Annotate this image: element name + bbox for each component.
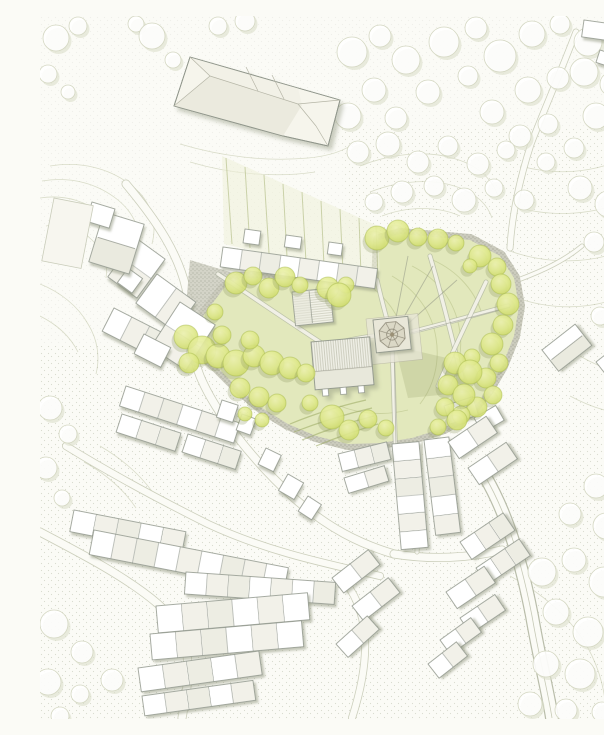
roof-tint — [207, 600, 234, 628]
roof-tint — [187, 687, 211, 709]
background-tree — [407, 151, 429, 173]
roof-tint — [206, 574, 228, 596]
background-tree — [139, 23, 165, 49]
roof-tint — [235, 652, 261, 678]
tree — [430, 419, 446, 435]
background-tree — [424, 176, 444, 196]
background-tree — [385, 107, 407, 129]
background-tree — [547, 67, 569, 89]
building-block — [582, 20, 604, 41]
tree — [241, 331, 259, 349]
background-tree — [538, 114, 558, 134]
background-tree — [429, 27, 459, 57]
background-tree — [519, 21, 545, 47]
background-tree — [480, 100, 504, 124]
background-tree — [40, 65, 57, 83]
background-tree — [71, 685, 89, 703]
tree — [458, 360, 482, 384]
background-tree — [562, 548, 586, 572]
church-roof-stripes — [311, 337, 372, 372]
background-tree — [518, 692, 542, 716]
roof-tint — [176, 630, 202, 657]
tree — [497, 293, 519, 315]
roof-tint — [394, 460, 421, 479]
tree — [447, 410, 467, 430]
background-tree — [101, 669, 123, 691]
tree — [207, 304, 223, 320]
background-tree — [69, 17, 87, 35]
building-footprint — [582, 20, 604, 41]
tree — [213, 326, 231, 344]
tree — [292, 277, 308, 293]
tree — [179, 353, 199, 373]
background-tree — [570, 58, 598, 86]
background-tree — [392, 46, 420, 74]
tree — [428, 229, 448, 249]
tree — [493, 315, 513, 335]
background-tree — [335, 103, 361, 129]
background-tree — [54, 490, 70, 506]
church-buttress — [322, 389, 329, 396]
roof-tint — [427, 457, 453, 478]
tree — [481, 333, 503, 355]
church-buttress — [340, 387, 347, 394]
background-tree — [484, 40, 516, 72]
background-tree — [497, 141, 515, 159]
building-footprint — [243, 229, 261, 245]
background-tree — [515, 77, 541, 103]
background-tree — [537, 153, 555, 171]
church-buttress — [358, 386, 365, 393]
tree — [359, 410, 377, 428]
background-tree — [514, 190, 534, 210]
tree — [491, 274, 511, 294]
tree — [484, 386, 502, 404]
tree — [453, 384, 475, 406]
background-tree — [71, 641, 93, 663]
roof-tint — [399, 513, 426, 532]
tree — [327, 283, 351, 307]
background-tree — [555, 699, 577, 719]
roof-tint — [251, 624, 277, 651]
tree — [387, 220, 409, 242]
background-tree — [391, 181, 413, 203]
background-tree — [209, 17, 227, 35]
background-tree — [485, 179, 503, 197]
tree — [378, 420, 394, 436]
background-tree — [362, 78, 386, 102]
site-plan — [40, 16, 604, 719]
background-tree — [543, 599, 569, 625]
building-block — [327, 242, 343, 256]
background-tree — [365, 193, 383, 211]
background-tree — [465, 17, 487, 39]
background-tree — [533, 651, 559, 677]
background-tree — [573, 617, 603, 647]
background-tree — [452, 188, 476, 212]
background-tree — [467, 153, 489, 175]
building-block — [243, 229, 261, 245]
roof-tint — [231, 681, 255, 703]
background-tree — [61, 85, 75, 99]
roof-tint — [176, 547, 201, 575]
roof-tint — [434, 514, 460, 535]
background-tree — [550, 16, 570, 34]
background-tree — [369, 25, 391, 47]
tree — [268, 394, 286, 412]
tree — [230, 378, 250, 398]
roof-tint — [201, 628, 227, 655]
background-tree — [438, 136, 458, 156]
background-tree — [565, 659, 595, 689]
tree — [244, 267, 262, 285]
roof-tint — [187, 658, 213, 684]
background-tree — [584, 232, 604, 252]
roof-tint — [228, 576, 250, 598]
roof-tint — [396, 477, 423, 496]
background-tree — [43, 25, 69, 51]
roof-tint — [163, 662, 189, 688]
background-tree — [165, 52, 181, 68]
building-footprint — [284, 235, 302, 249]
background-tree — [347, 141, 369, 163]
background-tree — [59, 425, 77, 443]
roof-tint — [313, 582, 335, 604]
background-tree — [376, 132, 400, 156]
tree — [297, 364, 315, 382]
site-plan-canvas — [40, 16, 604, 719]
background-tree — [40, 610, 68, 638]
roof-tint — [165, 690, 189, 712]
roof-tint — [356, 267, 377, 288]
tree — [490, 354, 508, 372]
background-tree — [40, 396, 62, 420]
background-tree — [564, 138, 584, 158]
tree — [409, 228, 427, 246]
building-footprint — [327, 242, 343, 256]
building-block — [284, 235, 302, 249]
background-tree — [528, 558, 556, 586]
roof-tint — [429, 476, 455, 497]
background-tree — [559, 503, 581, 525]
tree — [255, 413, 269, 427]
roof-tint — [111, 535, 136, 563]
tree — [302, 395, 318, 411]
roof-tint — [133, 539, 158, 567]
background-tree — [584, 474, 604, 498]
tree — [339, 420, 359, 440]
roof-tint — [182, 602, 209, 630]
background-tree — [568, 176, 592, 200]
tree — [448, 235, 464, 251]
tree — [463, 259, 477, 273]
tree — [488, 258, 506, 276]
tree — [238, 407, 252, 421]
background-tree — [458, 66, 478, 86]
church-tower — [373, 316, 411, 352]
background-tree — [416, 80, 440, 104]
background-tree — [337, 37, 367, 67]
roof-tint — [257, 596, 284, 624]
